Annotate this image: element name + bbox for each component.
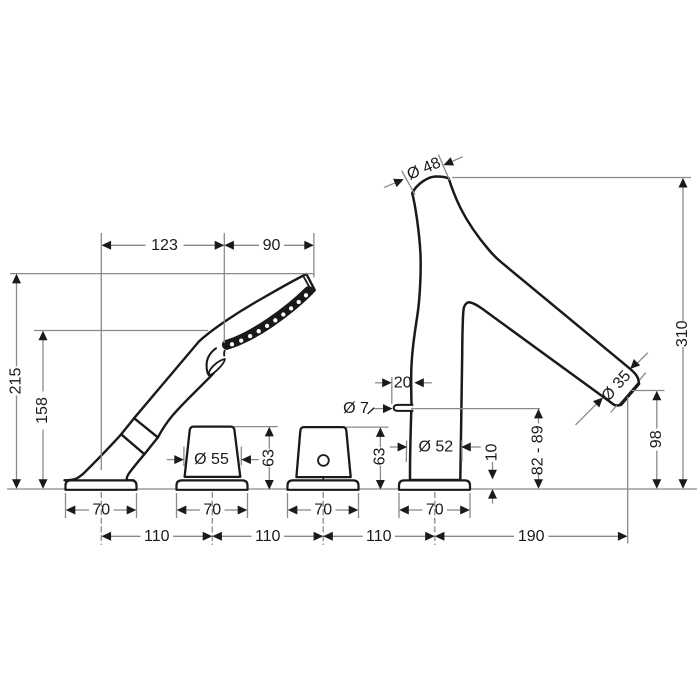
svg-text:70: 70 (92, 502, 110, 519)
svg-text:Ø 7: Ø 7 (343, 400, 369, 417)
svg-text:70: 70 (426, 502, 444, 519)
svg-text:98: 98 (648, 430, 665, 448)
svg-text:123: 123 (151, 237, 178, 254)
svg-text:82 - 89: 82 - 89 (530, 425, 547, 475)
svg-text:110: 110 (255, 528, 281, 545)
svg-text:110: 110 (366, 528, 392, 545)
svg-text:63: 63 (372, 448, 389, 466)
svg-text:Ø 55: Ø 55 (194, 451, 229, 468)
svg-text:190: 190 (518, 528, 545, 545)
svg-text:63: 63 (260, 449, 277, 467)
svg-text:20: 20 (394, 374, 412, 391)
svg-text:10: 10 (484, 444, 501, 462)
svg-text:Ø 52: Ø 52 (418, 439, 453, 456)
svg-text:158: 158 (34, 397, 51, 424)
svg-text:70: 70 (314, 502, 332, 519)
svg-text:70: 70 (203, 502, 221, 519)
svg-text:90: 90 (263, 237, 281, 254)
svg-text:110: 110 (144, 528, 170, 545)
svg-text:215: 215 (8, 368, 25, 395)
svg-text:310: 310 (674, 320, 691, 347)
